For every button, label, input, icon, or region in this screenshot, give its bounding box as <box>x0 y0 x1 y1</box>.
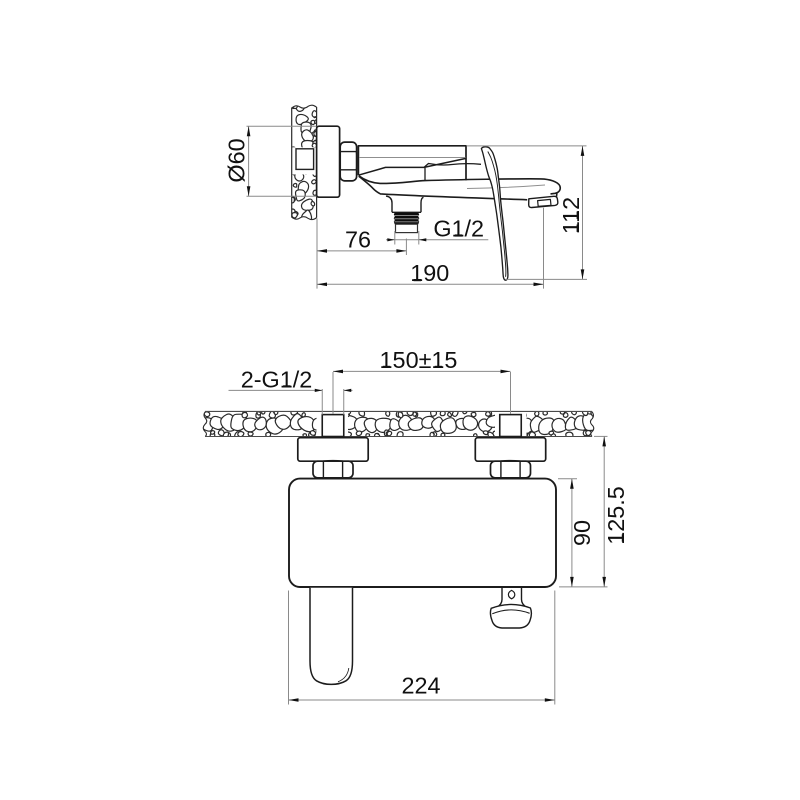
svg-text:150±15: 150±15 <box>380 347 458 373</box>
svg-text:125.5: 125.5 <box>603 486 629 545</box>
svg-text:Ø60: Ø60 <box>223 138 249 182</box>
svg-text:190: 190 <box>410 260 449 286</box>
svg-text:76: 76 <box>345 227 371 253</box>
svg-text:224: 224 <box>401 672 440 698</box>
svg-text:2-G1/2: 2-G1/2 <box>241 367 313 393</box>
svg-text:90: 90 <box>569 520 595 546</box>
svg-text:G1/2: G1/2 <box>433 216 484 242</box>
svg-text:112: 112 <box>558 197 584 234</box>
